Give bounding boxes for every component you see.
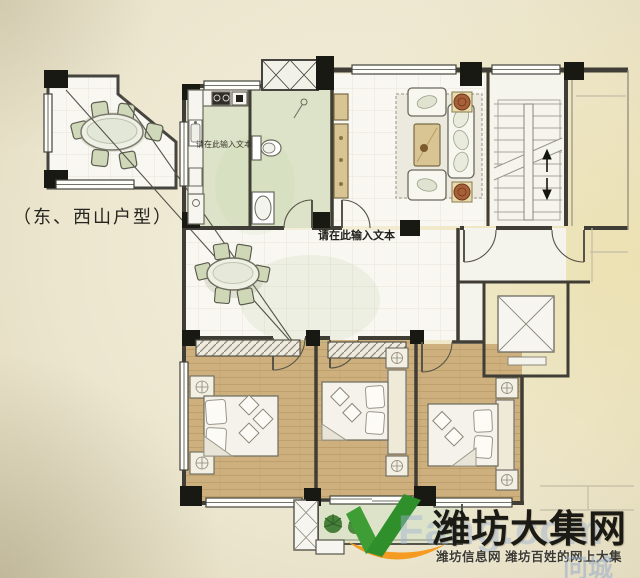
floor-plan-drawing	[0, 0, 640, 578]
double-bed	[428, 404, 498, 466]
armchair	[408, 88, 446, 116]
headboard	[496, 400, 514, 470]
unit-type-label: （东、西山户型）	[13, 203, 173, 229]
sofa	[448, 104, 474, 178]
entry-placeholder-note: 请在此输入文本	[318, 227, 395, 243]
window	[352, 65, 456, 74]
entry-shoe-cabinet	[334, 94, 348, 198]
lobby-floor	[460, 228, 566, 282]
window	[180, 122, 188, 186]
stair-handrail	[524, 104, 533, 220]
potted-plant	[452, 92, 472, 112]
floor-plan-image: （东、西山户型） 请在此输入文本 请在此输入文本 Fang.com 潍坊大集网 …	[0, 0, 640, 578]
headboard	[388, 370, 406, 454]
duct-shaft	[262, 60, 318, 90]
nightstand	[386, 348, 408, 368]
nightstand	[386, 456, 408, 476]
site-name-watermark: 潍坊大集网	[432, 498, 627, 553]
pillow	[205, 399, 227, 424]
bathroom-sink	[252, 192, 274, 224]
potted-plant	[452, 182, 472, 202]
column	[44, 70, 68, 88]
window	[492, 65, 560, 74]
stove	[212, 92, 230, 105]
pillow	[365, 411, 384, 434]
coffee-table	[414, 124, 440, 166]
nightstand	[496, 470, 518, 490]
pillow	[473, 410, 492, 433]
corner-watermark: 问城	[563, 549, 613, 578]
window	[206, 498, 302, 507]
double-bed	[204, 395, 278, 456]
window	[180, 362, 188, 470]
armchair	[408, 170, 446, 200]
pillow	[365, 385, 384, 408]
wall-detail-lines	[572, 70, 628, 230]
kitchen-placeholder-note: 请在此输入文本	[196, 139, 252, 150]
window	[204, 81, 260, 90]
dining-detail-inset	[44, 70, 176, 189]
fridge	[188, 194, 204, 224]
nightstand	[496, 378, 518, 398]
wardrobe	[196, 340, 300, 356]
double-bed	[322, 382, 388, 440]
nightstand	[190, 376, 214, 398]
balcony-step	[316, 540, 344, 554]
living-room-furniture	[396, 88, 482, 202]
